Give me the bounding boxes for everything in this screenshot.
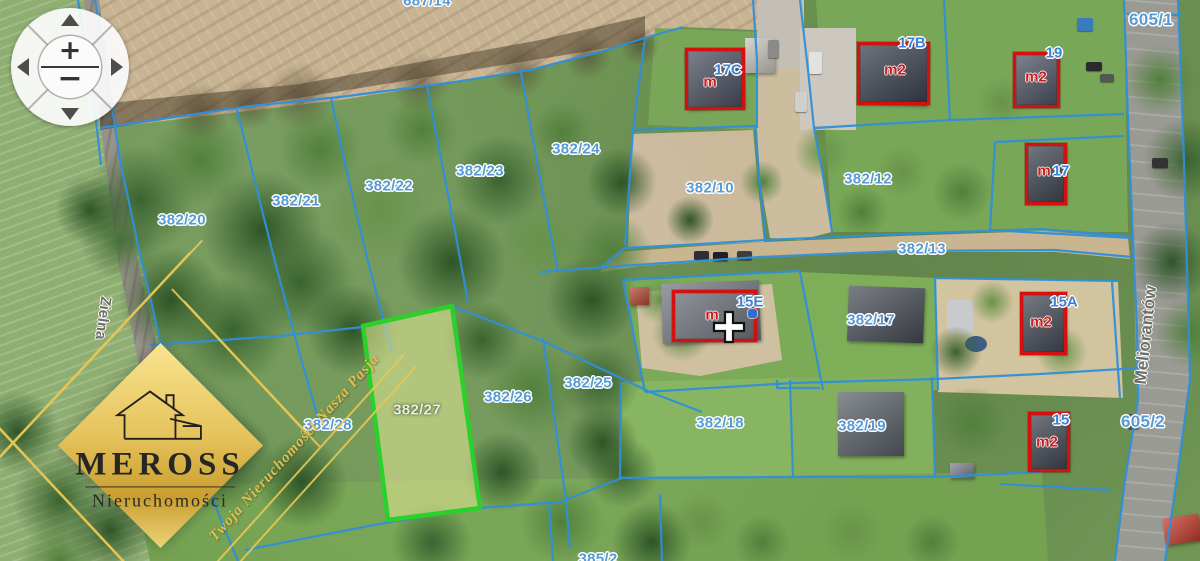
zoom-out-button[interactable]: − [39,67,101,96]
zoom-disc: + − [39,36,101,98]
brand-name: MEROSS [60,447,260,482]
pan-down-arrow-icon[interactable] [61,108,79,120]
house-logo-icon [100,382,220,442]
map-pan-zoom-control[interactable]: + − [11,8,129,126]
brand-divider [85,486,235,488]
aerial-map[interactable]: 382/20382/21382/22382/23382/24382/10382/… [0,0,1200,561]
street-name-label: Meliorantów [1131,285,1161,386]
pan-right-arrow-icon[interactable] [111,58,123,76]
pan-left-arrow-icon[interactable] [17,58,29,76]
address-point-dot [748,309,757,318]
location-cross-icon [711,309,747,345]
pan-up-arrow-icon[interactable] [61,14,79,26]
